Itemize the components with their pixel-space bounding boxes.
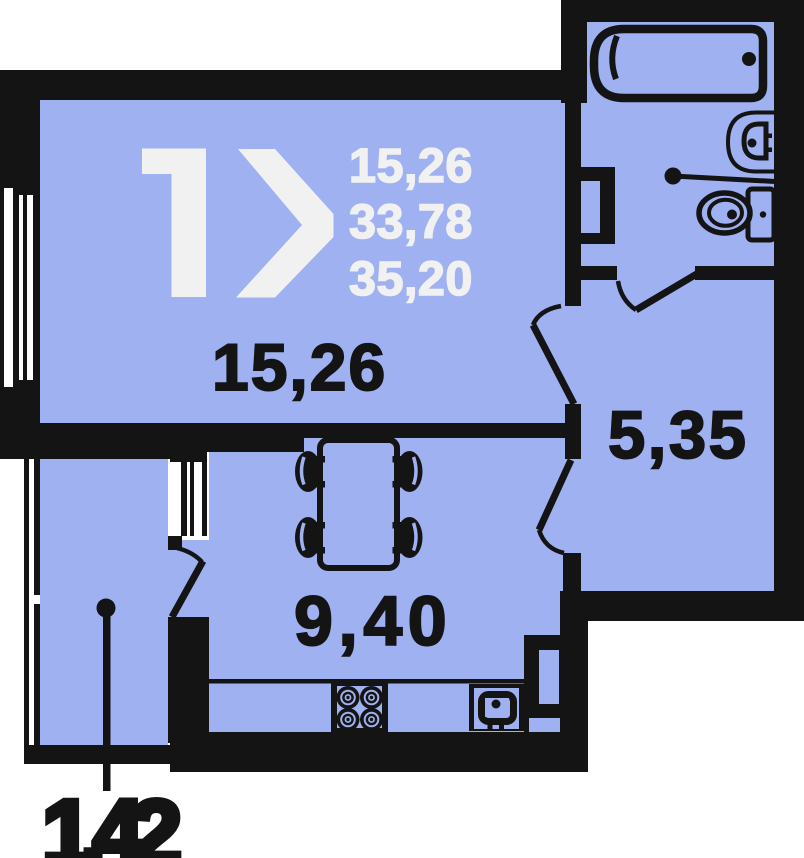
- svg-text:9,40: 9,40: [294, 582, 452, 660]
- svg-text:15,26: 15,26: [212, 330, 387, 404]
- svg-text:5,35: 5,35: [608, 398, 748, 473]
- svg-text:15,26: 15,26: [349, 139, 473, 193]
- svg-text:35,20: 35,20: [349, 252, 473, 306]
- svg-text:33,78: 33,78: [349, 195, 473, 249]
- svg-text:1,42: 1,42: [42, 782, 179, 858]
